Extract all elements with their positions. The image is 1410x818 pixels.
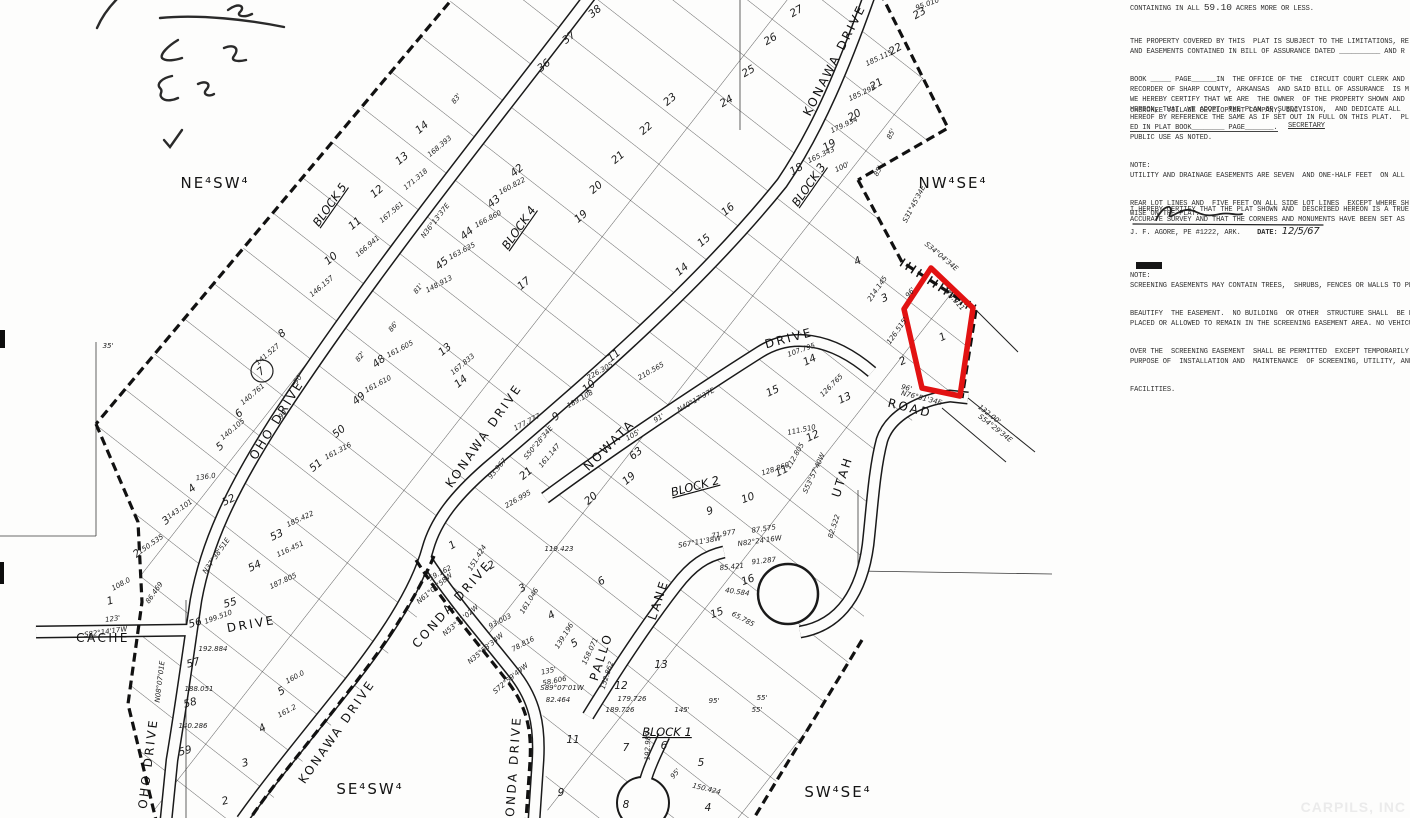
cul-de-sac	[617, 777, 669, 818]
street-label: CACHE	[76, 631, 130, 645]
measurement-label: 108.0	[110, 576, 132, 593]
measurement-label: 55'	[752, 706, 763, 714]
lot-number: 6	[661, 740, 668, 752]
lot-number: 4	[705, 802, 712, 814]
lot-number: 5	[698, 757, 705, 769]
lot-number: 13	[654, 659, 667, 671]
date-value: 12/5/67	[1282, 226, 1320, 237]
measurement-label: 145'	[674, 706, 689, 714]
measurement-label: S89°07'01W	[540, 684, 585, 692]
surveyor-signature	[1128, 200, 1338, 228]
company-name: CHEROKEE VILLAGE DEVELOPMENT COMPANY, IN…	[1130, 107, 1302, 117]
containing-line: CONTAINING IN ALL 59.10 ACRES MORE OR LE…	[1130, 3, 1314, 15]
surveyor-line: J. F. AGORE, PE #1222, ARK. DATE: 12/5/6…	[1130, 226, 1320, 239]
scanned-plat-page: 2723222120191826252414131211104243444517…	[0, 0, 1410, 818]
lot-number: 1	[105, 594, 115, 607]
acreage-value: 59.10	[1204, 2, 1232, 13]
measurement-label: 55'	[757, 694, 768, 702]
lot-number: 7	[623, 742, 630, 754]
date-label: DATE:	[1257, 229, 1278, 237]
measurement-label: 95'	[709, 697, 720, 705]
legal-text-panel: CONTAINING IN ALL 59.10 ACRES MORE OR LE…	[1128, 0, 1410, 818]
block-label: BLOCK 1	[642, 725, 692, 739]
screening-easement-note: NOTE:SCREENING EASEMENTS MAY CONTAIN TRE…	[1130, 253, 1410, 415]
scan-artifacts	[0, 330, 5, 584]
measurement-label: 192.884	[199, 645, 228, 653]
measurement-label: 179.726	[618, 695, 647, 703]
quarter-label: NE⁴SW⁴	[180, 174, 249, 192]
secretary-signature-line: SECRETARY	[1130, 122, 1325, 132]
measurement-label: 95.010	[914, 0, 940, 12]
lot-number: 8	[623, 799, 630, 811]
secretary-label: SECRETARY	[1288, 122, 1325, 132]
lot-number: 12	[614, 680, 628, 692]
quarter-label: NW⁴SE⁴	[918, 174, 987, 192]
measurement-label: 123'	[105, 614, 121, 624]
handwritten-scribbles	[97, 0, 284, 147]
measurement-label: 188.051	[185, 685, 214, 693]
lot-number: 9	[558, 787, 565, 799]
measurement-label: 189.726	[606, 706, 635, 714]
measurement-label: 35'	[103, 342, 114, 350]
measurement-label: 119.423	[545, 545, 574, 553]
quarter-label: SW⁴SE⁴	[804, 783, 871, 801]
utah-road-loop-core	[766, 572, 810, 616]
measurement-label: 140.286	[179, 722, 208, 730]
measurement-label: 82.464	[546, 696, 571, 704]
watermark: CARPILS, INC	[1301, 799, 1406, 815]
lot-number: 11	[566, 734, 579, 746]
quarter-label: SE⁴SW⁴	[336, 780, 403, 798]
ink-smudge	[1136, 262, 1162, 269]
signature-rule	[1130, 124, 1278, 132]
